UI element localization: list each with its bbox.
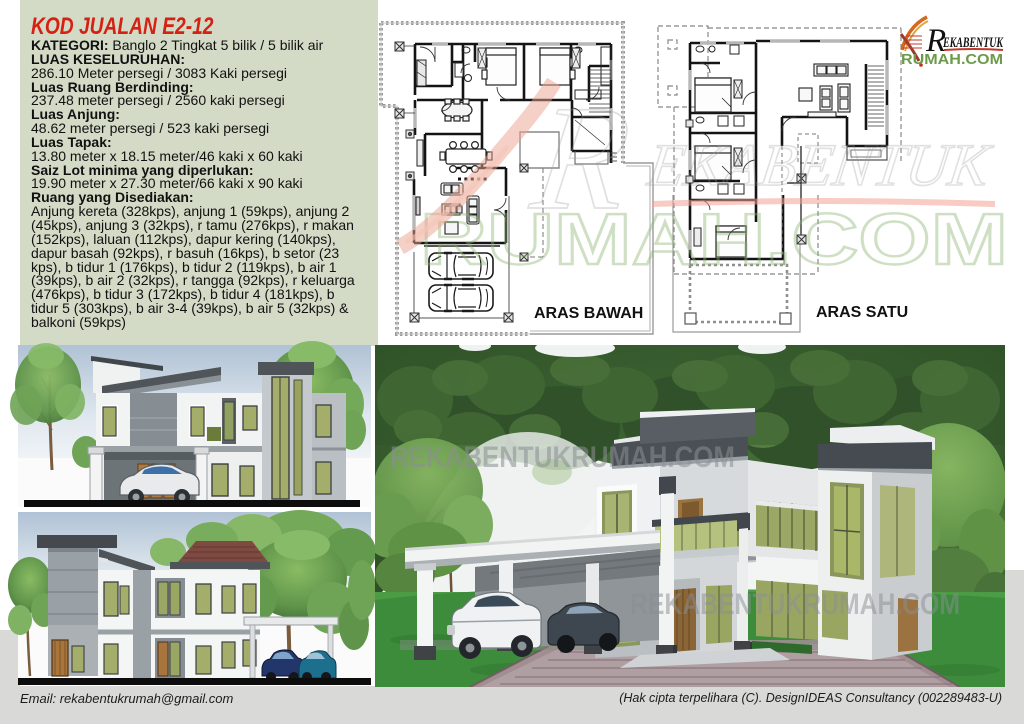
svg-text:RUMAH.COM: RUMAH.COM [420, 200, 1008, 280]
svg-text:REKABENTUKRUMAH.COM: REKABENTUKRUMAH.COM [630, 588, 960, 621]
svg-text:EKABENTUK: EKABENTUK [643, 132, 996, 199]
svg-text:RUMAH.COM: RUMAH.COM [901, 52, 1003, 68]
svg-text:ARAS SATU: ARAS SATU [816, 304, 908, 321]
svg-text:REKABENTUKRUMAH.COM: REKABENTUKRUMAH.COM [390, 441, 735, 474]
svg-text:ARAS BAWAH: ARAS BAWAH [534, 305, 643, 322]
